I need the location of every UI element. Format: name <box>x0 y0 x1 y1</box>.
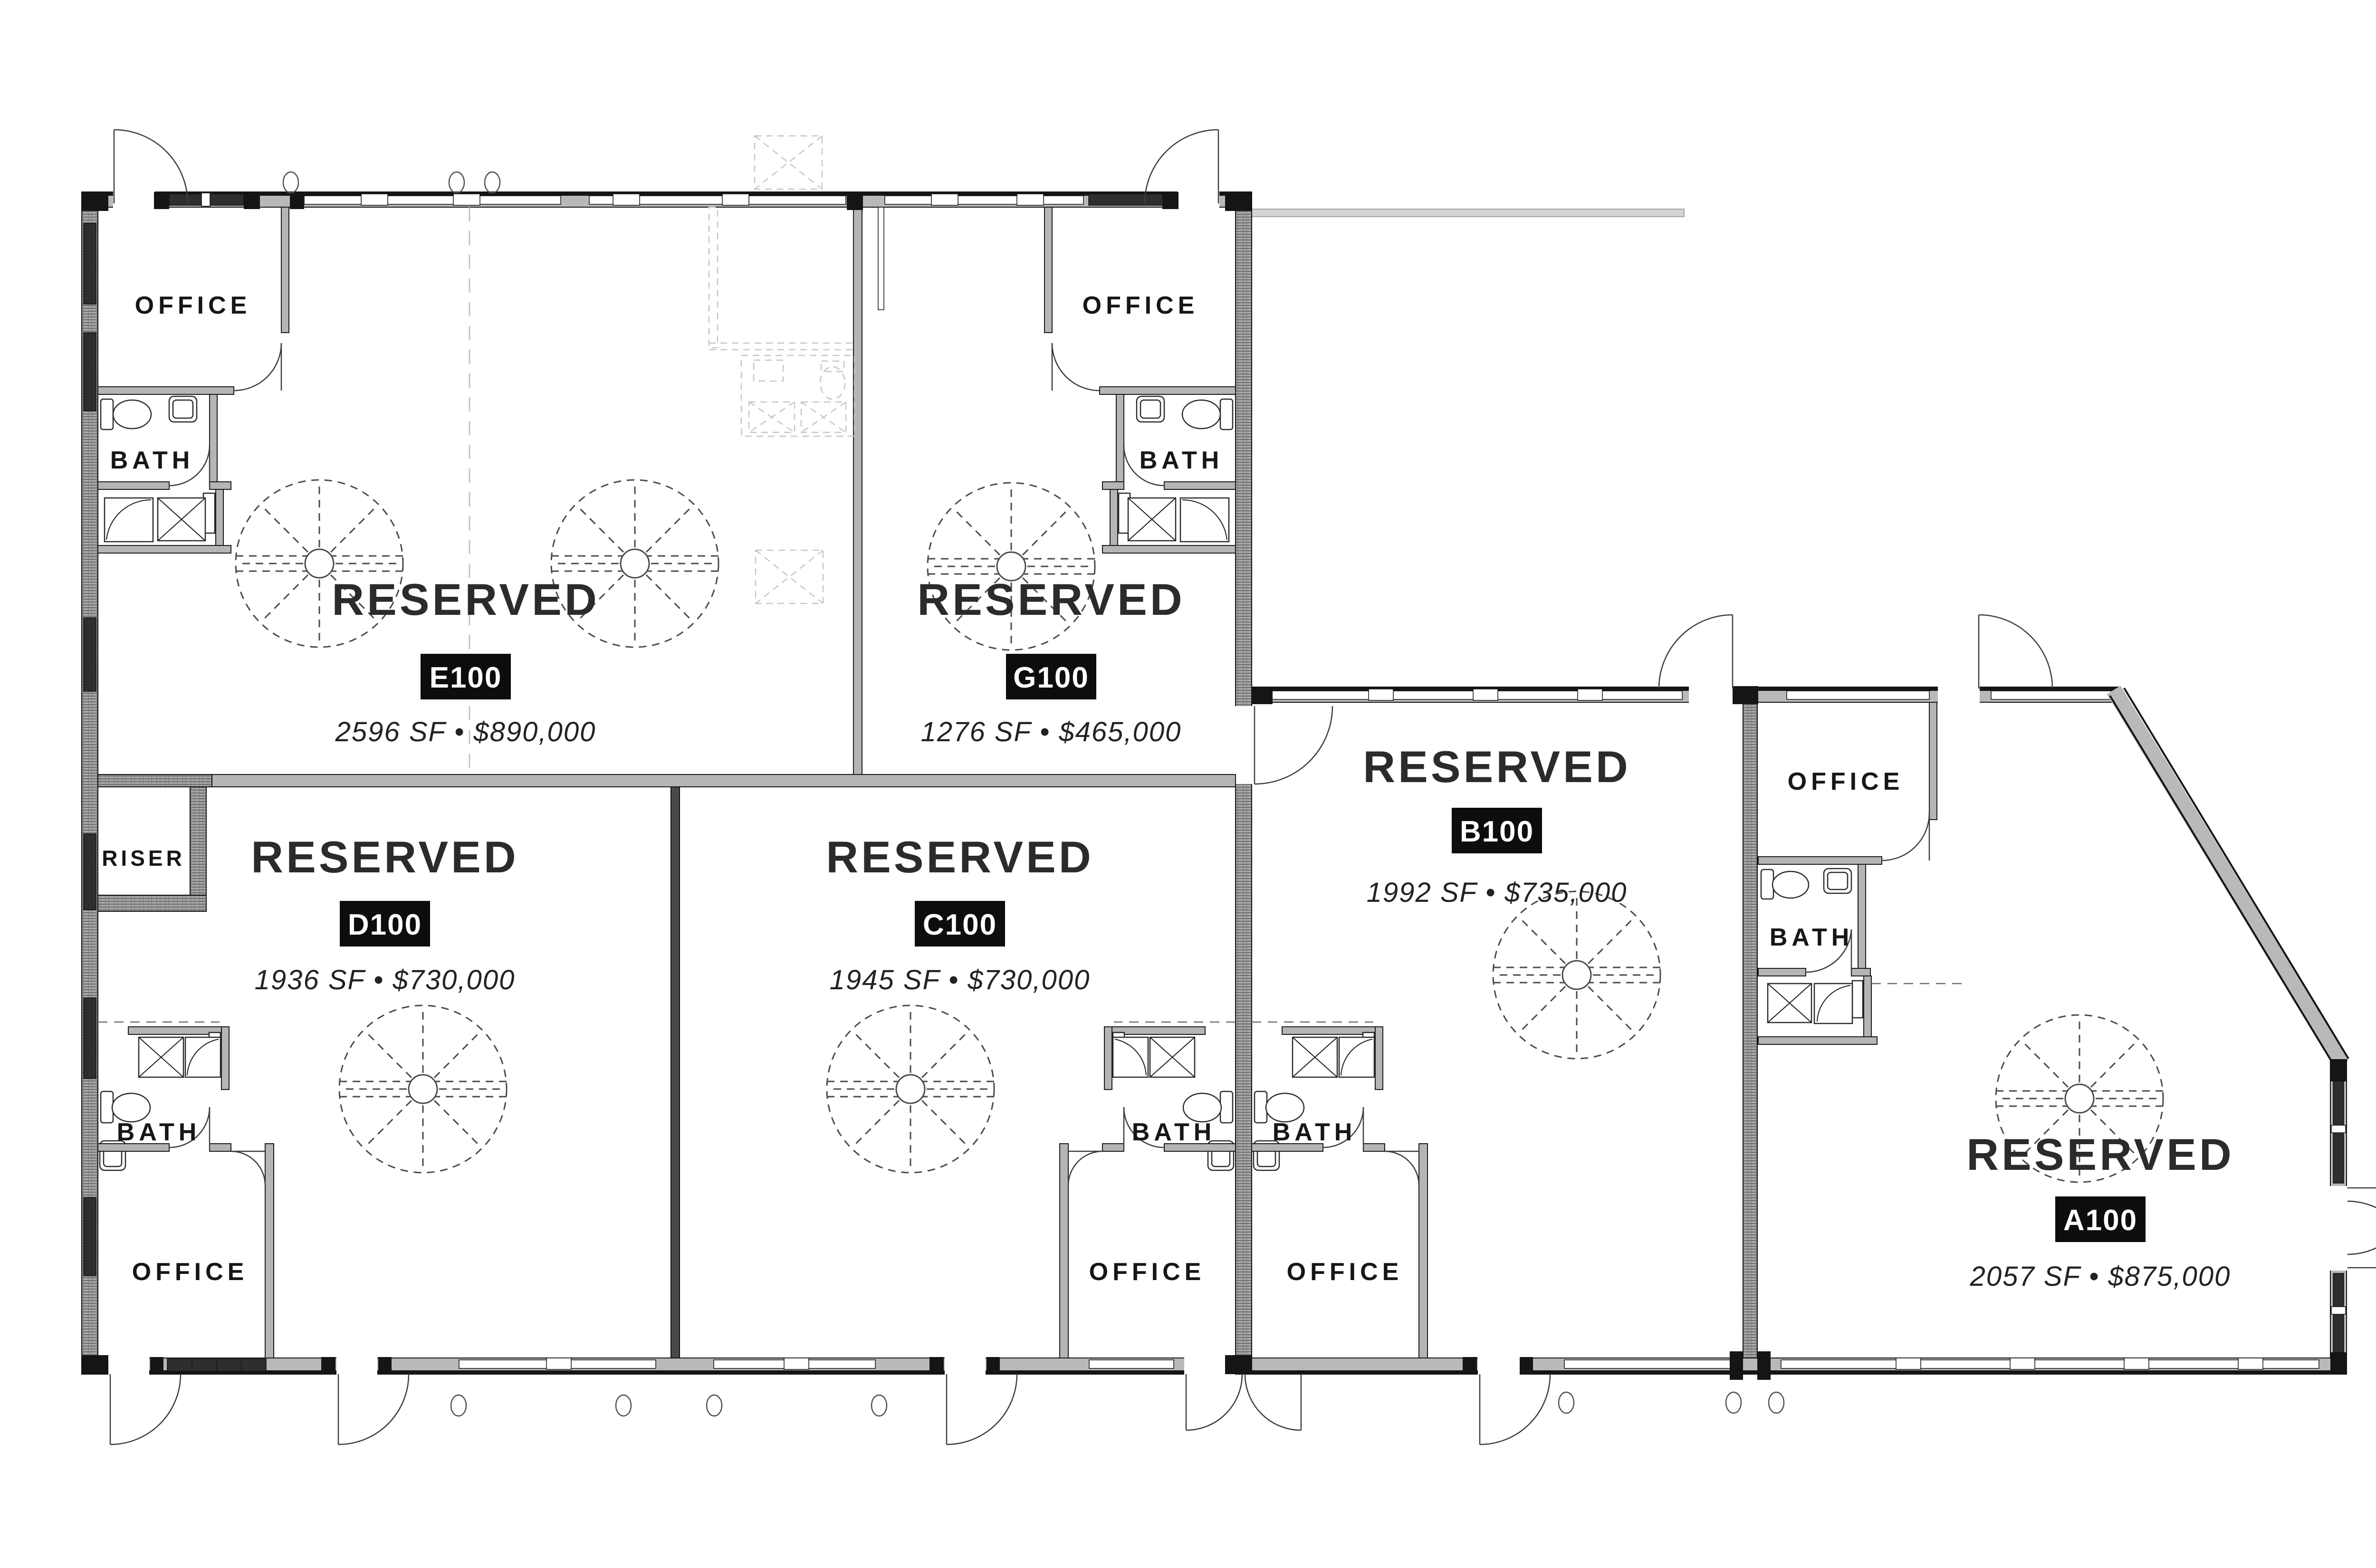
unit-c100-badge-text: C100 <box>923 908 997 941</box>
floor-plan-page: RESERVED E100 2596 SF • $890,000 RESERVE… <box>0 0 2376 1568</box>
room-label-bath-g100: BATH <box>1140 447 1224 474</box>
room-label-office-d100: OFFICE <box>132 1258 249 1286</box>
unit-d100-reserved-label: RESERVED <box>251 832 518 882</box>
unit-c100-size-price: 1945 SF • $730,000 <box>830 965 1091 995</box>
unit-b100-size-price: 1992 SF • $735,000 <box>1367 877 1628 908</box>
room-label-riser: RISER <box>102 846 185 870</box>
unit-e100-badge-text: E100 <box>430 661 502 694</box>
unit-c100-reserved-label: RESERVED <box>826 832 1093 882</box>
room-label-bath-b100: BATH <box>1273 1119 1357 1146</box>
unit-a100-reserved-label: RESERVED <box>1966 1129 2234 1179</box>
room-label-bath-c100: BATH <box>1132 1119 1216 1146</box>
unit-g100-badge-text: G100 <box>1013 661 1089 694</box>
unit-g100-reserved-label: RESERVED <box>917 574 1185 624</box>
unit-a100-badge-text: A100 <box>2063 1204 2137 1237</box>
unit-b100-reserved-label: RESERVED <box>1363 742 1630 792</box>
unit-d100-badge-text: D100 <box>348 908 422 941</box>
unit-e100-size-price: 2596 SF • $890,000 <box>335 717 596 747</box>
room-label-office-a100: OFFICE <box>1788 768 1904 795</box>
unit-d100-size-price: 1936 SF • $730,000 <box>255 965 516 995</box>
unit-g100-size-price: 1276 SF • $465,000 <box>921 717 1182 747</box>
room-label-office-e100: OFFICE <box>135 292 251 319</box>
unit-b100-badge-text: B100 <box>1460 815 1534 848</box>
room-label-office-g100: OFFICE <box>1083 292 1199 319</box>
g100-sidelite <box>878 207 884 310</box>
unit-a100-size-price: 2057 SF • $875,000 <box>1970 1261 2231 1292</box>
floor-plan-drawing: RESERVED E100 2596 SF • $890,000 RESERVE… <box>0 0 2376 1568</box>
unit-e100-reserved-label: RESERVED <box>332 574 599 624</box>
room-label-office-b100: OFFICE <box>1287 1258 1403 1286</box>
room-label-bath-e100: BATH <box>110 447 194 474</box>
room-label-bath-a100: BATH <box>1770 924 1854 951</box>
room-label-office-c100: OFFICE <box>1089 1258 1206 1286</box>
room-label-bath-d100: BATH <box>117 1119 201 1146</box>
